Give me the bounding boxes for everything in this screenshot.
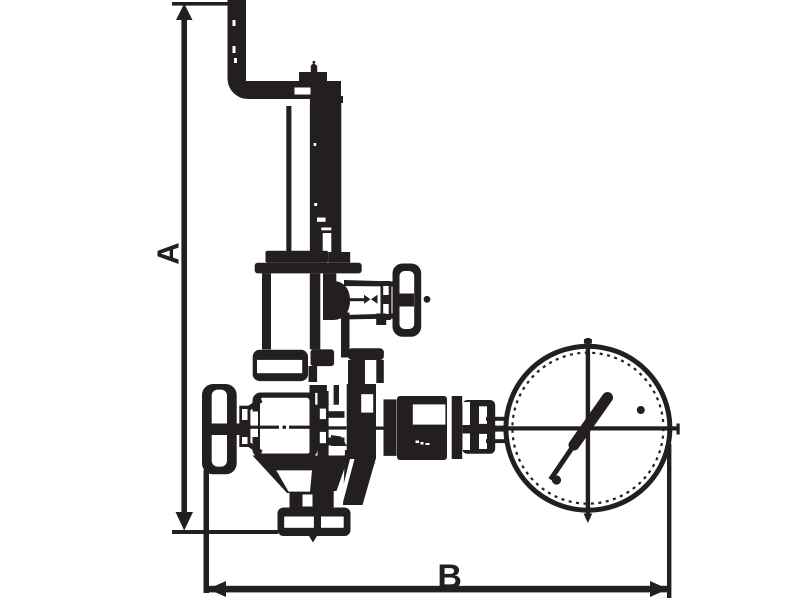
svg-text:A: A (151, 242, 186, 264)
svg-text:B: B (437, 558, 462, 596)
